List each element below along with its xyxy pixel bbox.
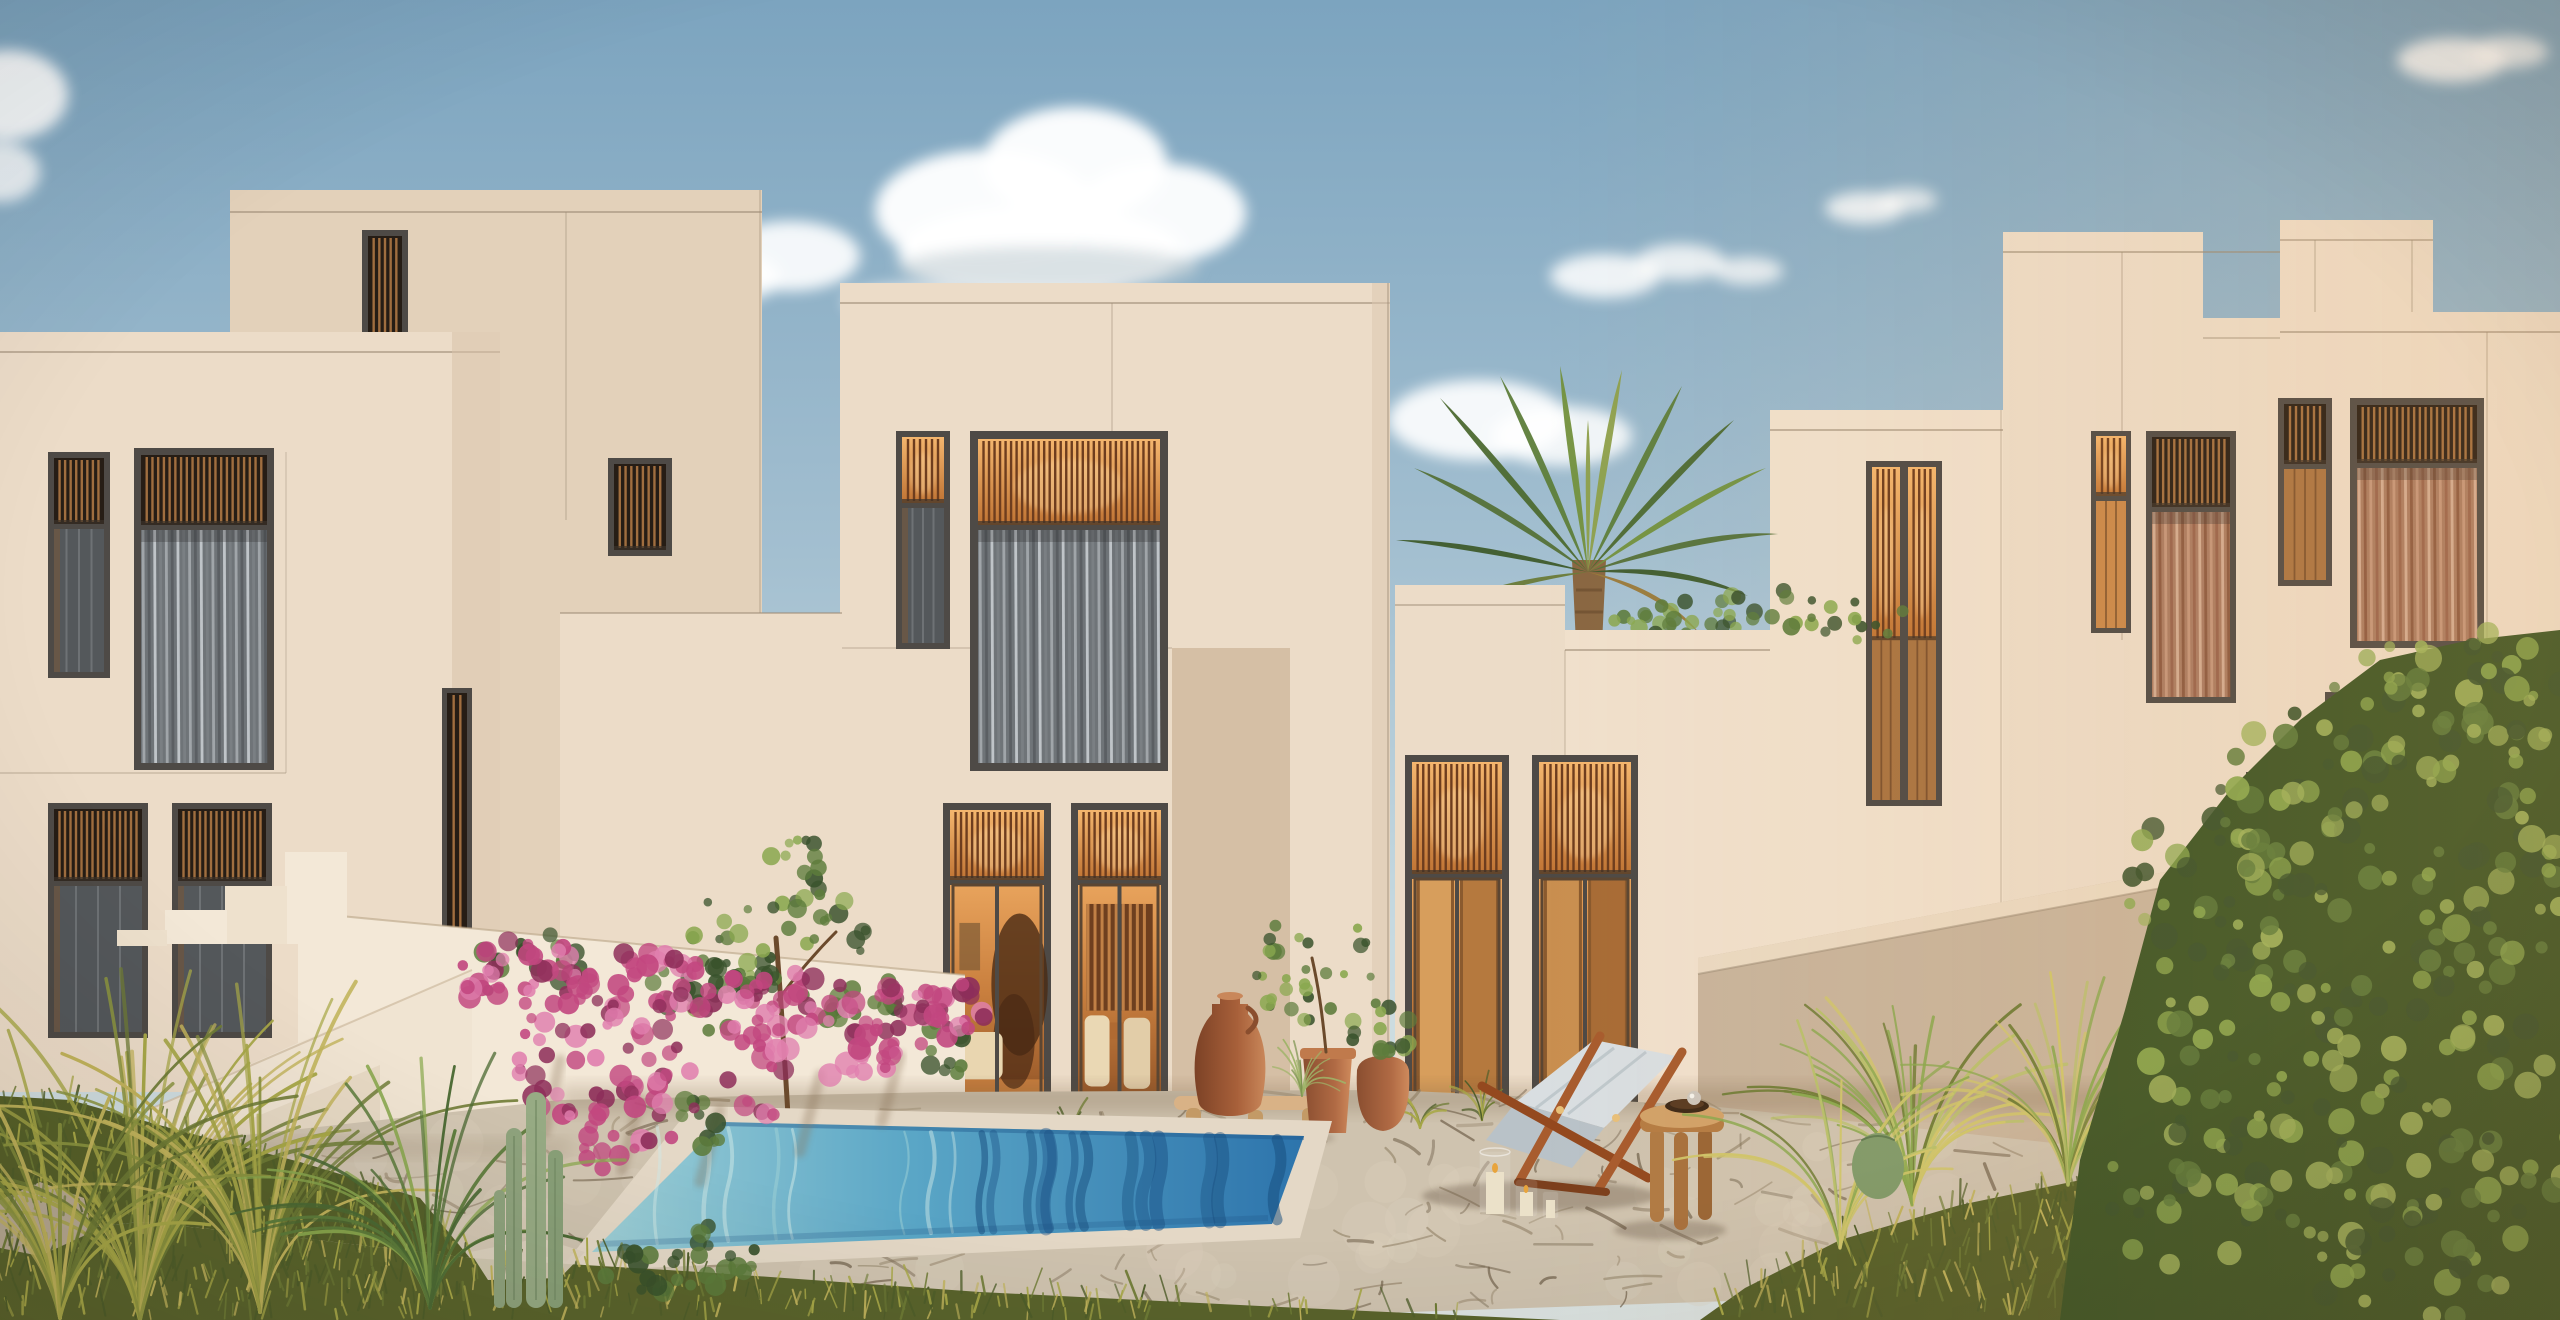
vignette xyxy=(0,0,2560,1320)
rendered-scene xyxy=(0,0,2560,1320)
villa-courtyard-illustration xyxy=(0,0,2560,1320)
